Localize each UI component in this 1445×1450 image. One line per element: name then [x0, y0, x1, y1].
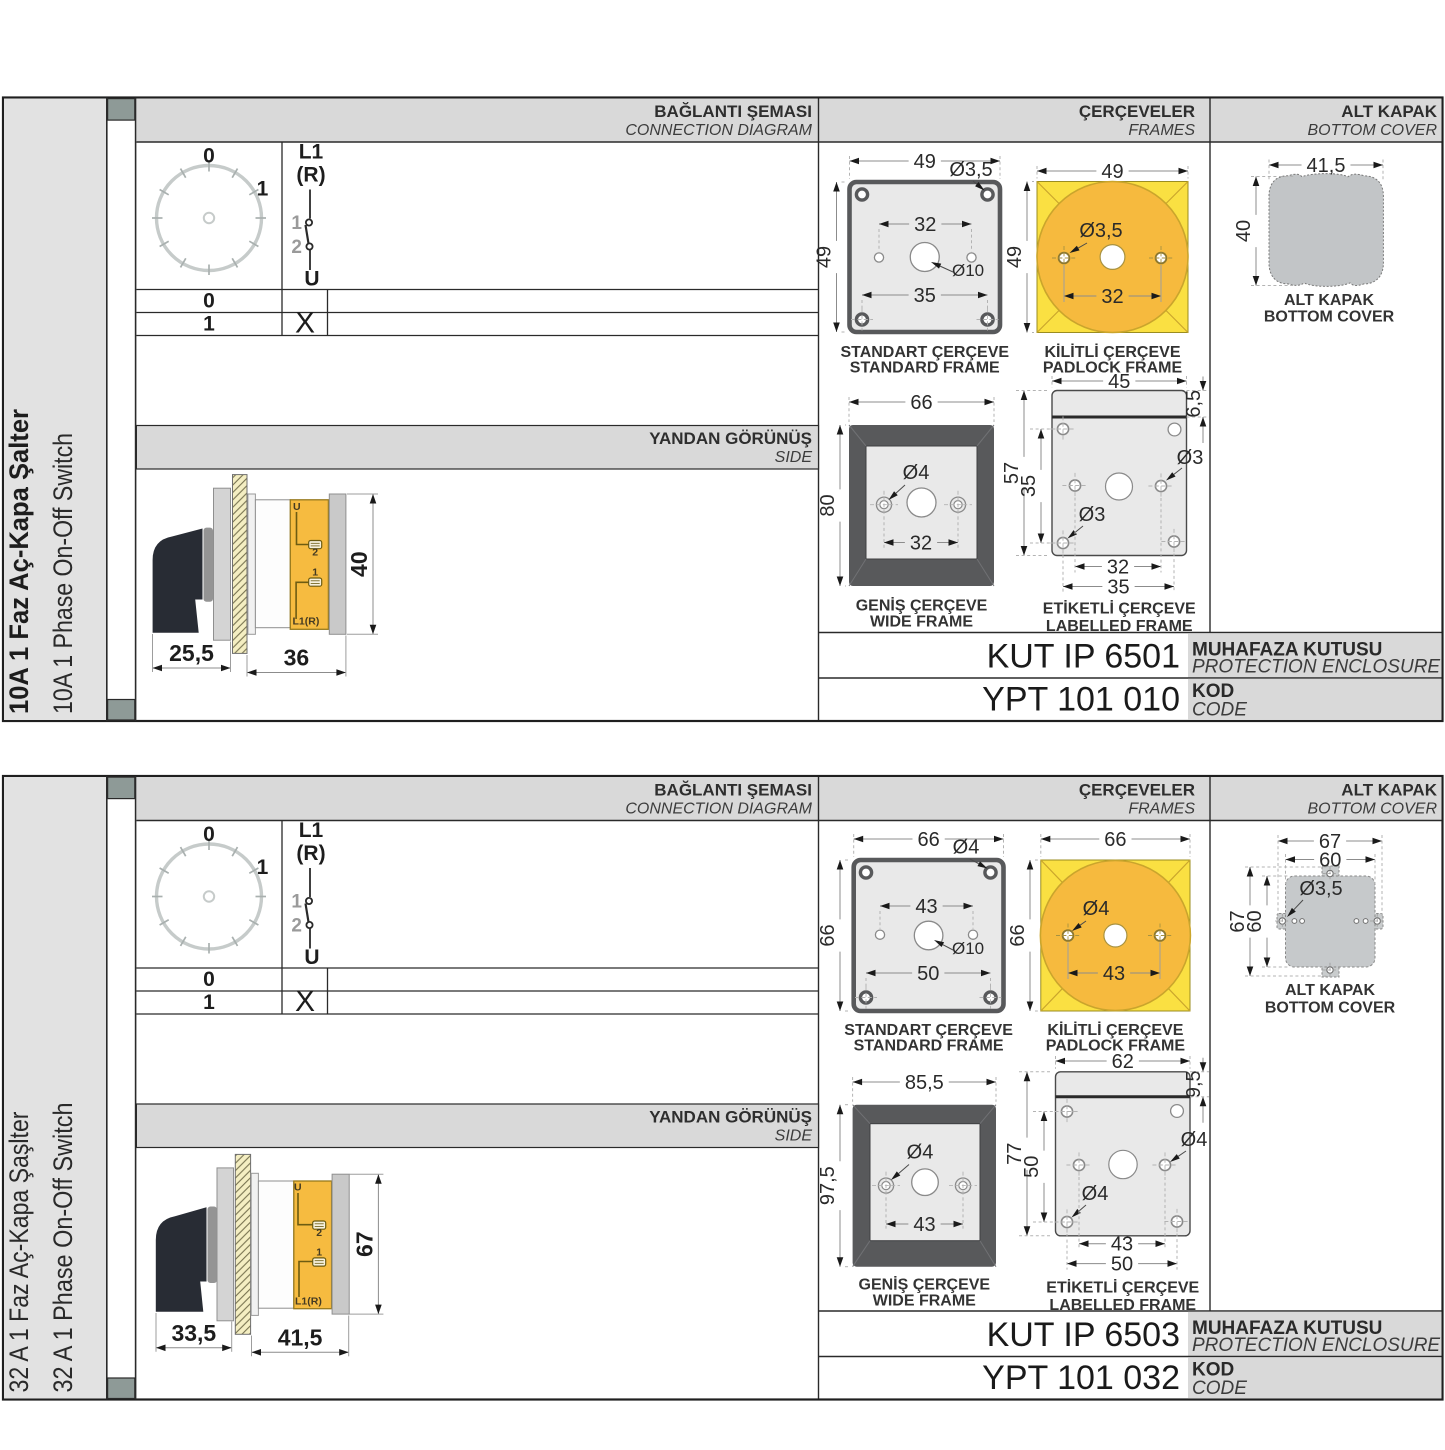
svg-text:0: 0	[203, 823, 215, 846]
svg-text:67: 67	[351, 1231, 377, 1257]
svg-text:ÇERÇEVELER: ÇERÇEVELER	[1079, 102, 1195, 121]
svg-text:L1: L1	[299, 141, 324, 164]
svg-text:SIDE: SIDE	[775, 449, 813, 466]
svg-text:60: 60	[1319, 850, 1341, 872]
svg-text:43: 43	[1111, 1234, 1133, 1256]
svg-text:GENİŞ ÇERÇEVE: GENİŞ ÇERÇEVE	[856, 597, 988, 615]
svg-text:Ø3: Ø3	[1177, 447, 1204, 469]
svg-text:Ø4: Ø4	[953, 837, 980, 859]
svg-text:X: X	[295, 985, 315, 1018]
svg-text:FRAMES: FRAMES	[1128, 801, 1195, 818]
svg-text:40: 40	[1233, 220, 1255, 242]
svg-text:Ø4: Ø4	[1083, 898, 1110, 920]
svg-text:ALT KAPAK: ALT KAPAK	[1341, 781, 1437, 800]
svg-text:60: 60	[1244, 910, 1266, 932]
svg-text:Ø3,5: Ø3,5	[1079, 220, 1122, 242]
svg-text:36: 36	[284, 645, 310, 671]
svg-text:CONNECTION DIAGRAM: CONNECTION DIAGRAM	[625, 122, 812, 139]
svg-text:PROTECTION ENCLOSURE: PROTECTION ENCLOSURE	[1192, 657, 1440, 678]
svg-text:WIDE FRAME: WIDE FRAME	[873, 1293, 976, 1310]
svg-text:BOTTOM COVER: BOTTOM COVER	[1308, 801, 1438, 818]
svg-text:66: 66	[1104, 829, 1126, 851]
svg-text:25,5: 25,5	[169, 640, 214, 666]
svg-text:41,5: 41,5	[1307, 155, 1346, 177]
svg-text:85,5: 85,5	[905, 1072, 944, 1094]
svg-text:U: U	[293, 501, 301, 513]
svg-text:STANDARD FRAME: STANDARD FRAME	[850, 360, 1000, 377]
svg-text:2: 2	[312, 546, 318, 558]
svg-text:U: U	[304, 946, 319, 969]
svg-text:Ø3,5: Ø3,5	[949, 159, 992, 181]
svg-text:32: 32	[914, 214, 936, 236]
svg-text:50: 50	[917, 963, 939, 985]
svg-text:43: 43	[915, 896, 937, 918]
svg-text:6,5: 6,5	[1183, 390, 1205, 418]
svg-text:49: 49	[1004, 246, 1026, 268]
svg-text:SIDE: SIDE	[775, 1128, 813, 1145]
svg-text:PROTECTION ENCLOSURE: PROTECTION ENCLOSURE	[1192, 1335, 1440, 1356]
svg-text:KUT IP 6503: KUT IP 6503	[987, 1316, 1180, 1354]
svg-text:Ø3: Ø3	[1079, 504, 1106, 526]
svg-text:BAĞLANTI ŞEMASI: BAĞLANTI ŞEMASI	[654, 102, 812, 121]
svg-text:YPT 101 032: YPT 101 032	[982, 1359, 1180, 1397]
svg-text:ALT KAPAK: ALT KAPAK	[1284, 292, 1375, 309]
svg-text:ÇERÇEVELER: ÇERÇEVELER	[1079, 781, 1195, 800]
svg-text:35: 35	[1107, 577, 1129, 599]
svg-text:U: U	[304, 268, 319, 291]
svg-text:9,5: 9,5	[1183, 1070, 1205, 1098]
svg-text:0: 0	[203, 290, 215, 313]
svg-text:ALT KAPAK: ALT KAPAK	[1285, 982, 1376, 999]
svg-text:Ø10: Ø10	[952, 939, 984, 958]
svg-text:(R): (R)	[296, 164, 325, 187]
svg-text:WIDE FRAME: WIDE FRAME	[870, 614, 973, 631]
svg-text:STANDART ÇERÇEVE: STANDART ÇERÇEVE	[840, 344, 1009, 361]
svg-text:40: 40	[346, 551, 372, 577]
svg-text:10A 1 Phase On-Off Switch: 10A 1 Phase On-Off Switch	[48, 433, 78, 714]
svg-text:1: 1	[257, 856, 269, 879]
svg-text:ALT KAPAK: ALT KAPAK	[1341, 102, 1437, 121]
svg-text:43: 43	[913, 1214, 935, 1236]
svg-text:32: 32	[1101, 286, 1123, 308]
svg-text:1: 1	[203, 313, 215, 336]
svg-text:1: 1	[291, 892, 302, 913]
svg-text:43: 43	[1103, 963, 1125, 985]
svg-text:KİLİTLİ ÇERÇEVE: KİLİTLİ ÇERÇEVE	[1047, 1021, 1183, 1039]
svg-text:BOTTOM COVER: BOTTOM COVER	[1308, 122, 1438, 139]
svg-text:32 A 1 Phase On-Off Switch: 32 A 1 Phase On-Off Switch	[48, 1103, 78, 1393]
svg-text:50: 50	[1111, 1254, 1133, 1276]
svg-text:YANDAN GÖRÜNÜŞ: YANDAN GÖRÜNÜŞ	[649, 1108, 812, 1127]
svg-text:32 A 1 Faz Aç-Kapa Şaşlter: 32 A 1 Faz Aç-Kapa Şaşlter	[4, 1112, 34, 1393]
svg-text:Ø3,5: Ø3,5	[1299, 878, 1342, 900]
svg-text:YPT 101 010: YPT 101 010	[982, 681, 1180, 719]
svg-text:2: 2	[316, 1227, 322, 1239]
svg-text:Ø4: Ø4	[907, 1142, 934, 1164]
svg-text:L1(R): L1(R)	[295, 1296, 322, 1308]
svg-text:BOTTOM COVER: BOTTOM COVER	[1265, 1000, 1396, 1017]
svg-text:66: 66	[917, 829, 939, 851]
svg-text:50: 50	[1021, 1156, 1043, 1178]
svg-text:32: 32	[1107, 557, 1129, 579]
svg-text:1: 1	[257, 178, 269, 201]
svg-text:GENİŞ ÇERÇEVE: GENİŞ ÇERÇEVE	[859, 1276, 991, 1294]
svg-text:35: 35	[1018, 475, 1040, 497]
svg-text:X: X	[295, 307, 315, 340]
svg-text:49: 49	[814, 246, 836, 268]
svg-text:FRAMES: FRAMES	[1128, 122, 1195, 139]
svg-text:ETİKETLİ ÇERÇEVE: ETİKETLİ ÇERÇEVE	[1043, 600, 1196, 618]
svg-text:YANDAN GÖRÜNÜŞ: YANDAN GÖRÜNÜŞ	[649, 429, 812, 448]
svg-text:BOTTOM COVER: BOTTOM COVER	[1264, 309, 1395, 326]
svg-text:80: 80	[817, 494, 839, 516]
svg-text:10A 1 Faz Aç-Kapa Şalter: 10A 1 Faz Aç-Kapa Şalter	[4, 409, 34, 714]
svg-text:66: 66	[817, 924, 839, 946]
svg-text:62: 62	[1112, 1051, 1134, 1073]
svg-text:BAĞLANTI ŞEMASI: BAĞLANTI ŞEMASI	[654, 781, 812, 800]
svg-text:1: 1	[291, 213, 302, 234]
svg-text:33,5: 33,5	[171, 1320, 216, 1346]
svg-text:66: 66	[910, 392, 932, 414]
svg-text:49: 49	[1101, 161, 1123, 183]
svg-text:35: 35	[914, 285, 936, 307]
svg-text:Ø10: Ø10	[952, 261, 984, 280]
svg-text:Ø4: Ø4	[1082, 1183, 1109, 1205]
svg-text:STANDARD FRAME: STANDARD FRAME	[854, 1038, 1004, 1055]
svg-text:2: 2	[291, 916, 302, 937]
svg-text:1: 1	[312, 567, 318, 579]
svg-text:1: 1	[316, 1246, 322, 1258]
svg-text:0: 0	[203, 145, 215, 168]
svg-text:66: 66	[1007, 924, 1029, 946]
svg-text:CODE: CODE	[1192, 1378, 1247, 1399]
svg-text:0: 0	[203, 968, 215, 991]
svg-text:KUT IP 6501: KUT IP 6501	[987, 638, 1180, 676]
svg-text:1: 1	[203, 991, 215, 1014]
svg-text:32: 32	[910, 533, 932, 555]
svg-text:L1: L1	[299, 819, 324, 842]
svg-text:Ø4: Ø4	[1181, 1129, 1208, 1151]
svg-text:(R): (R)	[296, 842, 325, 865]
svg-text:49: 49	[914, 151, 936, 173]
svg-text:U: U	[294, 1182, 302, 1194]
svg-text:2: 2	[291, 237, 302, 258]
svg-text:KİLİTLİ ÇERÇEVE: KİLİTLİ ÇERÇEVE	[1044, 343, 1180, 361]
svg-text:45: 45	[1108, 371, 1130, 393]
svg-text:41,5: 41,5	[278, 1324, 323, 1350]
svg-text:97,5: 97,5	[817, 1166, 839, 1205]
svg-text:CONNECTION DIAGRAM: CONNECTION DIAGRAM	[625, 801, 812, 818]
svg-text:Ø4: Ø4	[903, 462, 930, 484]
svg-text:STANDART ÇERÇEVE: STANDART ÇERÇEVE	[844, 1022, 1013, 1039]
svg-text:ETİKETLİ ÇERÇEVE: ETİKETLİ ÇERÇEVE	[1046, 1279, 1199, 1297]
svg-text:CODE: CODE	[1192, 700, 1247, 721]
